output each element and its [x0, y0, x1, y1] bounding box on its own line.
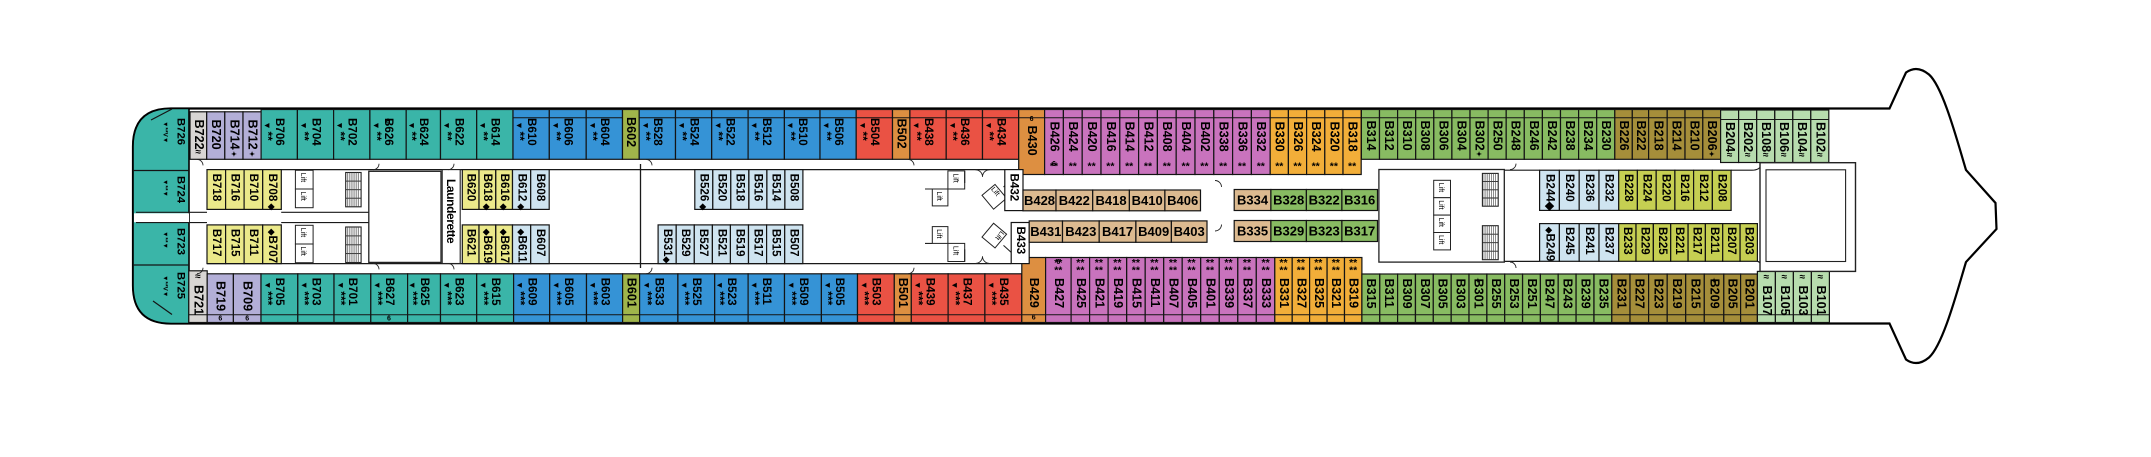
svg-text:**: ** [820, 132, 834, 142]
svg-text:B206: B206 [1705, 121, 1719, 151]
svg-text:B608: B608 [534, 174, 547, 202]
svg-text:B339: B339 [1222, 278, 1236, 308]
svg-text:B709: B709 [241, 281, 255, 311]
svg-text:▼: ▼ [479, 281, 489, 289]
svg-text:**: ** [297, 132, 311, 142]
svg-text:***: *** [821, 291, 835, 305]
svg-text:**: ** [1182, 161, 1191, 173]
svg-text:▼: ▼ [588, 121, 598, 129]
svg-text:▼: ▼ [299, 121, 309, 129]
svg-text:B710: B710 [247, 174, 260, 202]
svg-text:**: ** [1200, 161, 1209, 173]
svg-text:▼: ▼ [588, 281, 598, 289]
svg-text:B531◆: B531◆ [661, 229, 674, 265]
svg-text:B302: B302 [1473, 121, 1487, 151]
svg-text:B251: B251 [1525, 279, 1539, 309]
svg-text:✦: ✦ [1711, 277, 1717, 285]
svg-text:**: ** [1224, 265, 1233, 277]
svg-text:B324: B324 [1309, 122, 1323, 152]
svg-text:6: 6 [1032, 315, 1036, 322]
svg-text:B314: B314 [1364, 121, 1378, 151]
svg-text:**: ** [440, 132, 454, 142]
svg-text:▼: ▼ [371, 121, 381, 129]
svg-text:***: *** [678, 291, 692, 305]
svg-text:B310: B310 [1400, 121, 1414, 151]
svg-text:Lift: Lift [935, 229, 942, 238]
svg-text:B520: B520 [716, 174, 729, 202]
svg-text:B432: B432 [1008, 174, 1021, 202]
svg-text:B207: B207 [1725, 227, 1738, 255]
svg-text:≈: ≈ [1782, 272, 1788, 283]
svg-text:≈: ≈ [1800, 272, 1806, 283]
svg-text:***: *** [440, 291, 454, 305]
svg-text:B220: B220 [1659, 174, 1672, 202]
svg-text:B240: B240 [1563, 174, 1576, 202]
svg-text:B602: B602 [624, 117, 638, 147]
svg-text:B219: B219 [1670, 279, 1684, 309]
svg-text:**: ** [1054, 265, 1063, 277]
svg-text:B245: B245 [1563, 227, 1576, 255]
svg-text:B502: B502 [895, 119, 909, 149]
svg-text:B433: B433 [1014, 227, 1027, 255]
svg-text:6: 6 [1030, 116, 1034, 123]
svg-text:**: ** [1206, 265, 1215, 277]
svg-text:B401: B401 [1203, 278, 1217, 308]
svg-text:≈: ≈ [1781, 150, 1787, 161]
svg-text:B205: B205 [1726, 279, 1740, 309]
svg-text:B517: B517 [751, 229, 764, 257]
svg-text:▼: ▼ [677, 121, 687, 129]
svg-text:≈: ≈ [1745, 150, 1751, 161]
svg-text:B418: B418 [1096, 193, 1127, 208]
svg-text:B516: B516 [752, 174, 765, 202]
svg-text:B246: B246 [1527, 121, 1541, 151]
svg-text:B612 ◆: B612 ◆ [515, 174, 528, 212]
svg-text:**: ** [261, 132, 275, 142]
svg-text:B203: B203 [1743, 227, 1756, 255]
svg-text:Lift: Lift [951, 173, 958, 182]
svg-text:B718: B718 [210, 174, 223, 202]
svg-text:**: ** [1187, 265, 1196, 277]
svg-text:B226: B226 [1617, 121, 1631, 151]
svg-text:B218: B218 [1651, 121, 1665, 151]
svg-text:▼: ▼ [641, 121, 651, 129]
svg-text:***: *** [785, 291, 799, 305]
svg-text:B712: B712 [246, 120, 260, 150]
svg-text:▼: ▼ [859, 281, 869, 289]
svg-text:✦: ✦ [1475, 277, 1481, 285]
svg-text:**: ** [1219, 161, 1228, 173]
svg-text:**: ** [550, 132, 564, 142]
svg-text:**: ** [910, 132, 924, 142]
svg-text:**: ** [1262, 265, 1271, 277]
svg-text:B616 ◆: B616 ◆ [498, 174, 511, 212]
svg-text:B410: B410 [1132, 193, 1163, 208]
svg-text:***: *** [948, 291, 962, 305]
svg-text:**: ** [586, 132, 600, 142]
svg-text:◆B249: ◆B249 [1543, 226, 1556, 262]
svg-text:**: ** [1088, 161, 1097, 173]
svg-text:B336: B336 [1235, 122, 1249, 152]
svg-text:B243: B243 [1561, 279, 1575, 309]
svg-text:B306: B306 [1436, 121, 1450, 151]
svg-text:▼**▼: ▼**▼ [162, 231, 169, 249]
svg-text:B714: B714 [227, 120, 241, 150]
svg-text:B242: B242 [1545, 121, 1559, 151]
svg-text:▼: ▼ [715, 281, 725, 289]
svg-text:◆B611: ◆B611 [515, 228, 528, 263]
svg-text:**: ** [1144, 161, 1153, 173]
svg-text:B419: B419 [1111, 278, 1125, 308]
svg-text:B108: B108 [1759, 122, 1773, 152]
svg-text:**: ** [513, 132, 527, 142]
svg-text:B247: B247 [1543, 279, 1557, 309]
svg-text:B105: B105 [1778, 286, 1792, 316]
svg-text:≈: ≈ [1818, 272, 1824, 283]
svg-text:**: ** [1312, 161, 1321, 173]
svg-text:B507: B507 [788, 229, 801, 257]
svg-text:**: ** [784, 132, 798, 142]
svg-text:**: ** [1113, 265, 1122, 277]
svg-text:B620: B620 [464, 174, 477, 202]
svg-text:***: *** [298, 291, 312, 305]
svg-text:▼: ▼ [823, 281, 833, 289]
svg-text:▼: ▼ [713, 121, 723, 129]
svg-text:Lift: Lift [299, 173, 306, 182]
svg-text:B529: B529 [679, 229, 692, 257]
svg-text:B527: B527 [697, 229, 710, 257]
svg-text:B526 ◆: B526 ◆ [698, 174, 711, 212]
svg-text:6: 6 [1056, 259, 1060, 266]
svg-text:B106: B106 [1777, 122, 1791, 152]
svg-text:B331: B331 [1277, 278, 1291, 308]
svg-text:**: ** [1150, 265, 1159, 277]
svg-text:**: ** [639, 132, 653, 142]
svg-text:**: ** [370, 132, 384, 142]
svg-text:B415: B415 [1129, 278, 1143, 308]
svg-text:B223: B223 [1651, 279, 1665, 309]
svg-text:B201: B201 [1742, 279, 1756, 309]
svg-text:▼: ▼ [911, 121, 921, 129]
svg-text:**: ** [712, 132, 726, 142]
svg-text:B217: B217 [1691, 227, 1704, 255]
svg-text:B417: B417 [1102, 224, 1133, 239]
svg-text:◆B707: ◆B707 [266, 228, 279, 263]
svg-text:B514: B514 [770, 174, 783, 202]
svg-text:B228: B228 [1622, 174, 1635, 202]
svg-text:▼: ▼ [551, 121, 561, 129]
svg-text:***: *** [858, 291, 872, 305]
svg-text:▼: ▼ [263, 121, 273, 129]
svg-text:**: ** [856, 132, 870, 142]
svg-text:B225: B225 [1656, 227, 1669, 255]
svg-text:B607: B607 [534, 229, 547, 257]
svg-text:B402: B402 [1198, 122, 1212, 152]
svg-text:**: ** [982, 132, 996, 142]
svg-text:***: *** [550, 291, 564, 305]
svg-text:▼: ▼ [515, 281, 525, 289]
svg-text:***: *** [912, 291, 926, 305]
svg-text:▼**V▼: ▼**V▼ [162, 275, 169, 297]
svg-text:B320: B320 [1327, 122, 1341, 152]
svg-text:B414: B414 [1123, 122, 1137, 152]
svg-text:▼: ▼ [407, 281, 417, 289]
svg-text:B721: B721 [191, 285, 205, 315]
svg-text:B621: B621 [464, 229, 477, 257]
svg-text:**: ** [1314, 265, 1323, 277]
svg-text:B719: B719 [214, 281, 228, 311]
svg-text:**: ** [1163, 161, 1172, 173]
svg-text:**: ** [1330, 161, 1339, 173]
svg-text:B407: B407 [1166, 278, 1180, 308]
svg-text:B325: B325 [1312, 278, 1326, 308]
svg-text:▼: ▼ [822, 121, 832, 129]
svg-text:B238: B238 [1563, 121, 1577, 151]
svg-text:B326: B326 [1291, 122, 1305, 152]
svg-text:**: ** [1125, 161, 1134, 173]
svg-text:B430: B430 [1025, 126, 1039, 156]
svg-text:≈: ≈ [1727, 150, 1733, 161]
svg-text:▼: ▼ [263, 281, 273, 289]
svg-text:6: 6 [245, 316, 249, 323]
svg-text:**: ** [1275, 161, 1284, 173]
svg-text:Lift: Lift [1437, 183, 1444, 192]
svg-text:**: ** [748, 132, 762, 142]
svg-text:B725: B725 [175, 272, 187, 299]
svg-text:B521: B521 [715, 229, 728, 257]
svg-text:▼: ▼ [786, 281, 796, 289]
svg-text:B304: B304 [1454, 121, 1468, 151]
svg-text:B724: B724 [175, 176, 187, 204]
svg-text:B409: B409 [1138, 224, 1169, 239]
svg-text:B618 ◆: B618 ◆ [481, 174, 494, 212]
svg-text:▼: ▼ [442, 281, 452, 289]
svg-text:▼**▼: ▼**▼ [162, 179, 169, 197]
svg-text:✦: ✦ [249, 150, 255, 158]
svg-text:B101: B101 [1814, 286, 1828, 316]
svg-text:B711: B711 [247, 229, 260, 257]
svg-text:B411: B411 [1148, 278, 1162, 307]
svg-text:B405: B405 [1185, 278, 1199, 308]
svg-text:B307: B307 [1418, 279, 1432, 309]
svg-text:Lift: Lift [951, 246, 958, 255]
svg-text:B601: B601 [625, 278, 639, 308]
svg-text:B429: B429 [1027, 278, 1041, 308]
svg-text:B241: B241 [1583, 227, 1596, 255]
svg-text:✦: ✦ [1476, 150, 1482, 158]
svg-text:**: ** [1169, 265, 1178, 277]
svg-text:B204: B204 [1723, 122, 1737, 152]
svg-text:***: *** [713, 291, 727, 305]
svg-text:***: *** [985, 291, 999, 305]
svg-text:B315: B315 [1364, 279, 1378, 309]
svg-text:B253: B253 [1507, 279, 1521, 309]
svg-text:Lift: Lift [299, 247, 306, 256]
svg-text:Lift: Lift [1437, 200, 1444, 209]
svg-text:B231: B231 [1614, 279, 1628, 309]
svg-text:▼: ▼ [950, 281, 960, 289]
svg-text:B250: B250 [1491, 121, 1505, 151]
svg-text:6: 6 [386, 119, 390, 126]
svg-text:***: *** [406, 291, 420, 305]
svg-text:B224: B224 [1641, 174, 1654, 202]
svg-text:B715: B715 [229, 229, 242, 257]
svg-text:B412: B412 [1141, 122, 1155, 152]
svg-text:B248: B248 [1509, 121, 1523, 151]
svg-text:6: 6 [387, 316, 391, 323]
svg-text:6: 6 [218, 316, 222, 323]
svg-text:≈: ≈ [196, 147, 202, 158]
svg-text:▼: ▼ [680, 281, 690, 289]
svg-text:B420: B420 [1085, 122, 1099, 152]
svg-text:▼: ▼ [913, 281, 923, 289]
svg-text:B237: B237 [1603, 227, 1616, 255]
svg-text:B309: B309 [1400, 279, 1414, 309]
svg-text:**: ** [1238, 161, 1247, 173]
svg-text:B416: B416 [1104, 122, 1118, 152]
svg-text:B333: B333 [1259, 278, 1273, 308]
svg-text:B222: B222 [1634, 121, 1648, 151]
svg-text:B722: B722 [192, 120, 206, 150]
svg-text:***: *** [477, 291, 491, 305]
svg-text:B332: B332 [1254, 122, 1268, 152]
svg-text:6: 6 [1052, 161, 1056, 168]
svg-text:B317: B317 [1344, 224, 1375, 239]
svg-text:B202: B202 [1741, 122, 1755, 152]
svg-text:B212: B212 [1697, 174, 1710, 202]
svg-text:B404: B404 [1179, 122, 1193, 152]
svg-text:B428: B428 [1024, 193, 1055, 208]
svg-text:B235: B235 [1596, 279, 1610, 309]
svg-text:B424: B424 [1066, 122, 1080, 152]
svg-text:B408: B408 [1160, 122, 1174, 152]
svg-text:B322: B322 [1309, 193, 1340, 208]
svg-text:B236: B236 [1583, 174, 1596, 202]
svg-text:B337: B337 [1240, 278, 1254, 308]
svg-text:B334: B334 [1237, 193, 1269, 208]
svg-text:≈: ≈ [1764, 272, 1770, 283]
svg-text:≈: ≈ [1817, 150, 1823, 161]
svg-text:▼**V▼: ▼**V▼ [162, 121, 169, 143]
svg-text:▼: ▼ [373, 281, 383, 289]
svg-text:B211: B211 [1708, 227, 1721, 255]
svg-text:**: ** [1132, 265, 1141, 277]
svg-text:▼: ▼ [442, 121, 452, 129]
svg-text:B208: B208 [1716, 174, 1729, 202]
svg-text:**: ** [946, 132, 960, 142]
svg-text:B316: B316 [1344, 193, 1375, 208]
svg-text:B328: B328 [1273, 193, 1304, 208]
svg-text:✦: ✦ [231, 150, 237, 158]
svg-text:B318: B318 [1346, 122, 1360, 152]
svg-text:▼: ▼ [858, 121, 868, 129]
svg-text:B501: B501 [896, 278, 910, 308]
svg-text:▼: ▼ [515, 121, 525, 129]
svg-text:▼: ▼ [299, 281, 309, 289]
svg-text:B255: B255 [1489, 279, 1503, 309]
svg-text:B338: B338 [1217, 122, 1231, 152]
svg-text:▼: ▼ [750, 121, 760, 129]
svg-text:B216: B216 [1678, 174, 1691, 202]
svg-text:Lift: Lift [1437, 235, 1444, 244]
svg-text:B519: B519 [733, 229, 746, 257]
svg-text:**: ** [1106, 161, 1115, 173]
svg-text:Lift: Lift [299, 228, 306, 237]
svg-text:▼: ▼ [552, 281, 562, 289]
svg-text:B425: B425 [1074, 278, 1088, 308]
svg-text:***: *** [586, 291, 600, 305]
svg-text:B221: B221 [1673, 227, 1686, 255]
svg-text:▼: ▼ [335, 121, 345, 129]
svg-text:**: ** [1069, 161, 1078, 173]
svg-text:**: ** [334, 132, 348, 142]
svg-text:B716: B716 [229, 174, 242, 202]
svg-text:B214: B214 [1670, 121, 1684, 151]
svg-text:◆B617: ◆B617 [498, 228, 511, 263]
svg-text:B239: B239 [1578, 279, 1592, 309]
svg-text:**: ** [1293, 161, 1302, 173]
svg-text:Lift: Lift [935, 192, 942, 201]
svg-text:***: *** [641, 291, 655, 305]
svg-text:B427: B427 [1052, 278, 1066, 308]
svg-text:**: ** [1243, 265, 1252, 277]
svg-text:B305: B305 [1436, 279, 1450, 309]
svg-text:▼: ▼ [336, 281, 346, 289]
svg-text:B518: B518 [734, 174, 747, 202]
svg-text:B229: B229 [1639, 227, 1652, 255]
svg-text:B717: B717 [210, 229, 223, 257]
svg-text:B329: B329 [1273, 224, 1304, 239]
svg-text:B232: B232 [1603, 174, 1616, 202]
svg-text:**: ** [405, 132, 419, 142]
svg-text:▼: ▼ [786, 121, 796, 129]
svg-text:B323: B323 [1309, 224, 1340, 239]
svg-text:**: ** [1349, 265, 1358, 277]
svg-text:**: ** [1257, 161, 1266, 173]
svg-text:◆B619: ◆B619 [481, 228, 494, 264]
svg-text:B508: B508 [788, 174, 801, 202]
svg-text:B308: B308 [1418, 121, 1432, 151]
svg-text:▼: ▼ [987, 281, 997, 289]
svg-text:B321: B321 [1329, 278, 1343, 308]
svg-text:B423: B423 [1065, 224, 1096, 239]
svg-text:B726: B726 [175, 118, 187, 145]
svg-text:B327: B327 [1294, 278, 1308, 308]
svg-text:**: ** [675, 132, 689, 142]
svg-text:▼: ▼ [948, 121, 958, 129]
svg-text:▼: ▼ [478, 121, 488, 129]
svg-text:B233: B233 [1621, 227, 1634, 255]
svg-text:**: ** [1297, 265, 1306, 277]
svg-text:B403: B403 [1174, 224, 1205, 239]
svg-text:B104: B104 [1795, 122, 1809, 152]
svg-text:B319: B319 [1347, 278, 1361, 308]
svg-text:B515: B515 [770, 229, 783, 257]
svg-text:Lift: Lift [299, 192, 306, 201]
svg-text:***: *** [514, 291, 528, 305]
svg-text:B107: B107 [1760, 286, 1774, 316]
svg-text:B335: B335 [1237, 224, 1268, 239]
svg-text:≈: ≈ [1763, 150, 1769, 161]
svg-text:B431: B431 [1030, 224, 1061, 239]
svg-text:B230: B230 [1599, 121, 1613, 151]
svg-text:B103: B103 [1796, 286, 1810, 316]
svg-text:**: ** [1348, 161, 1357, 173]
svg-text:B303: B303 [1454, 279, 1468, 309]
svg-text:B708 ◆: B708 ◆ [266, 174, 279, 212]
svg-text:✦: ✦ [1709, 150, 1715, 158]
svg-text:B215: B215 [1688, 279, 1702, 309]
